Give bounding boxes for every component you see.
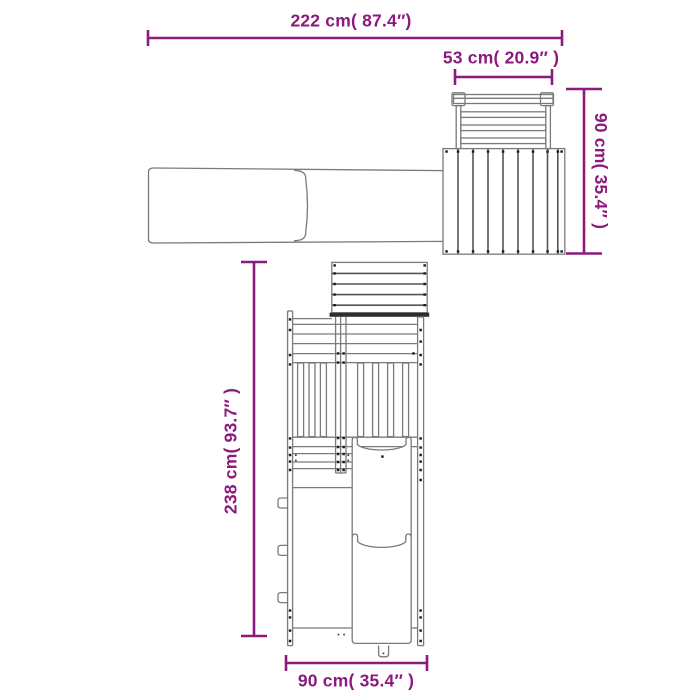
dimension-label-unit-length: 238 cm( 93.7″ ) (222, 388, 240, 514)
railing-top-rails (293, 324, 418, 362)
ladder-rungs (278, 498, 288, 603)
dimension-unit-length-line (241, 262, 267, 636)
dimension-label-total-width: 222 cm( 87.4″) (290, 12, 411, 30)
product-dimension-diagram: 222 cm( 87.4″) 53 cm( 20.9″ ) 90 cm( 35.… (0, 0, 700, 700)
tower-top-view (278, 311, 424, 657)
platform-slat (461, 125, 546, 131)
roof-top-view (330, 262, 430, 316)
screw-dots (290, 152, 562, 654)
playset-top-view-drawing (0, 0, 700, 700)
dimension-platform-width-line (455, 69, 552, 85)
dimension-label-platform-width: 53 cm( 20.9″ ) (443, 49, 559, 67)
deck-plank-lines (458, 149, 558, 253)
slide-foot (379, 646, 389, 657)
platform-post (546, 106, 551, 149)
dimension-label-tower-width: 90 cm( 35.4″ ) (298, 672, 414, 690)
platform-slat (461, 112, 546, 118)
platform-deck (443, 149, 565, 255)
tower-right-post (418, 317, 424, 646)
dimension-tower-width-line (286, 655, 427, 671)
platform-top-view (443, 93, 565, 254)
roof-front-edge (330, 313, 430, 317)
dimension-label-platform-depth: 90 cm( 35.4″ ) (591, 113, 609, 229)
tower-left-post (288, 311, 293, 646)
platform-slat (461, 138, 546, 144)
platform-top-beam (454, 95, 554, 104)
straight-slide-top-view (149, 168, 444, 243)
platform-post (456, 106, 461, 149)
dimension-total-width-line (148, 30, 562, 46)
tower-middle-posts (336, 317, 346, 473)
tower-slide-top-view (352, 437, 411, 656)
slide-section-joint (294, 170, 307, 241)
railing-balusters (298, 363, 409, 437)
